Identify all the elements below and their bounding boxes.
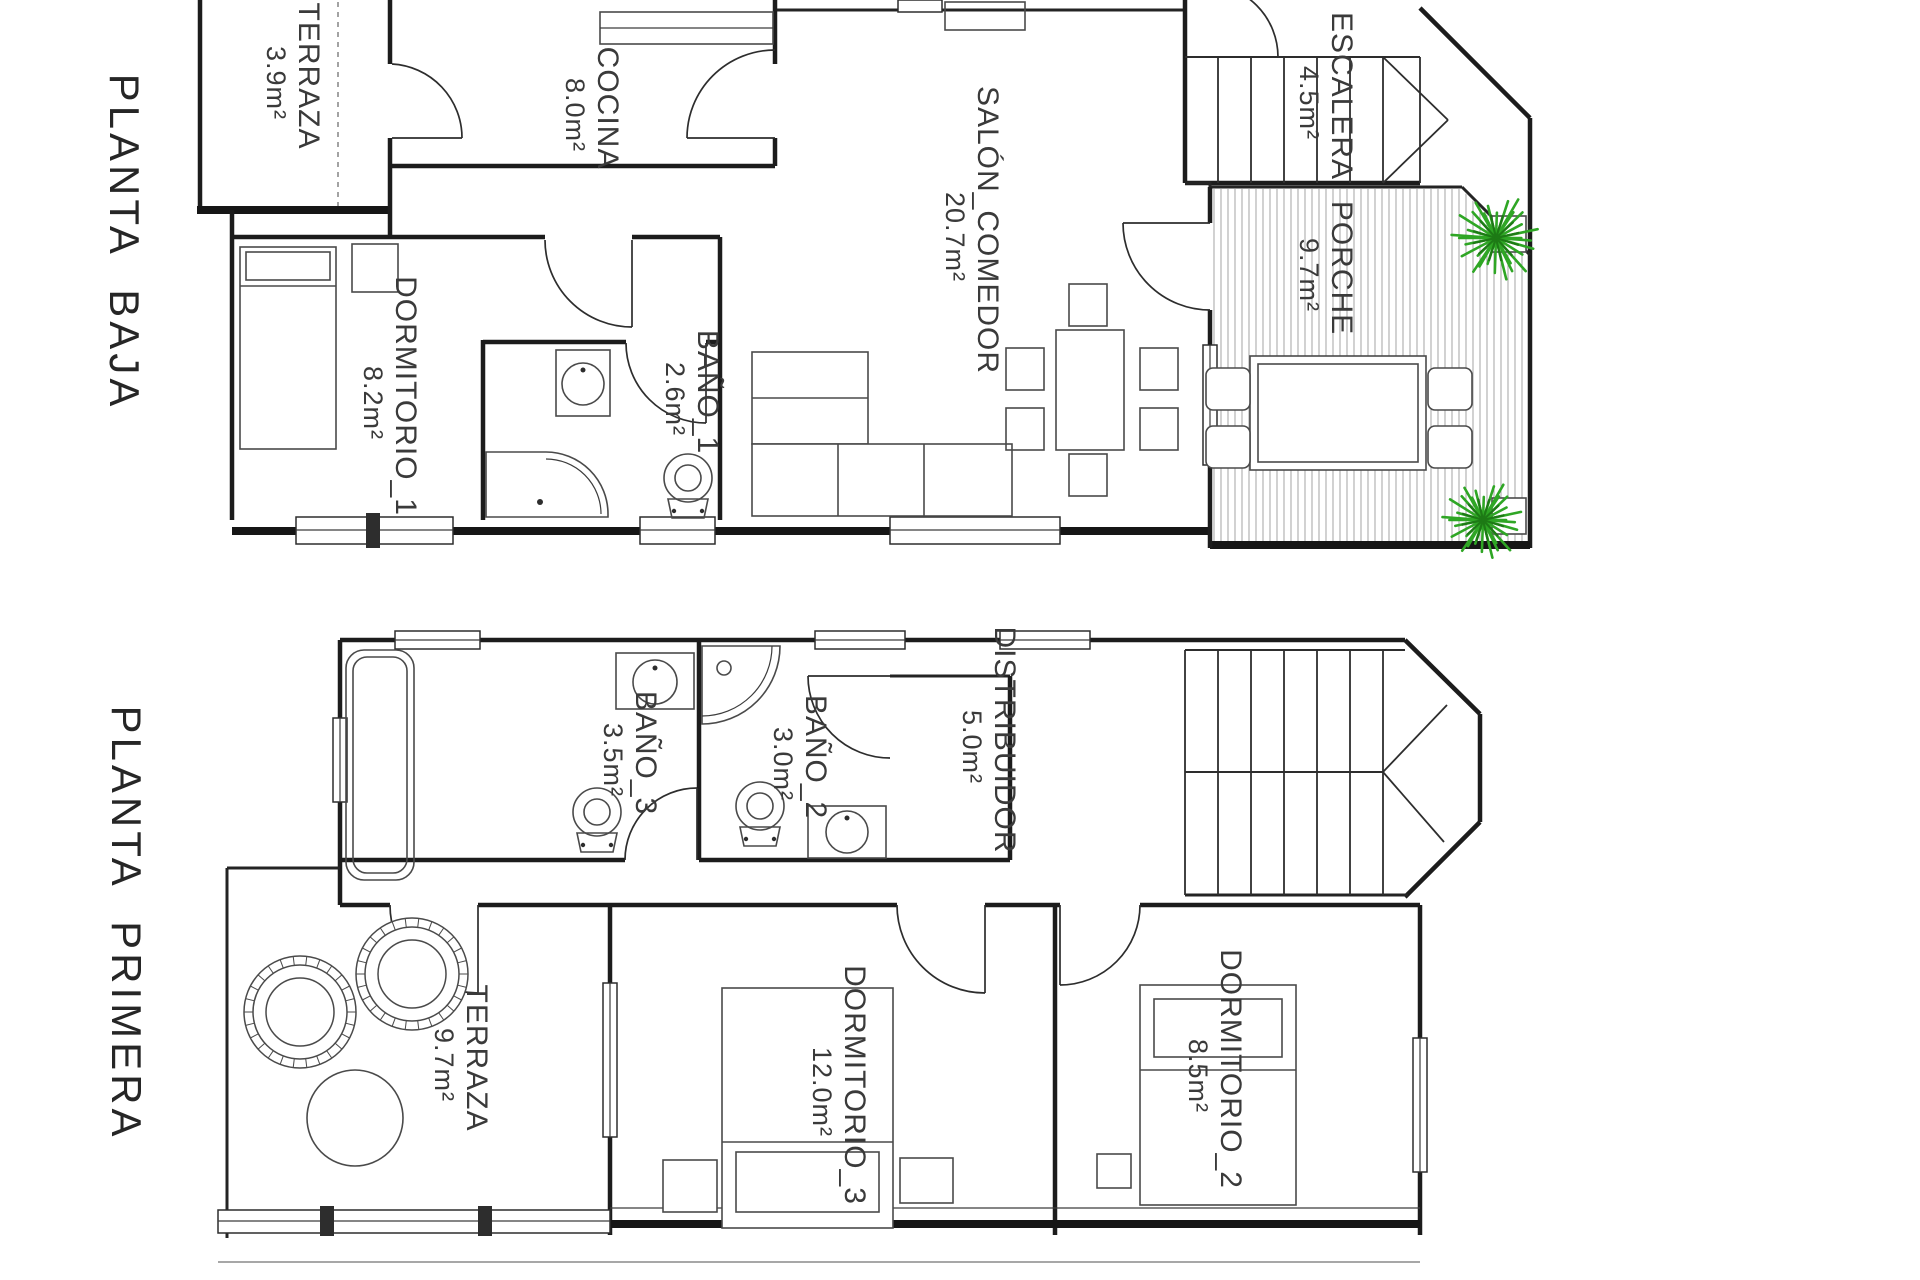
floorplan-page: TERRAZA 3.9m² COCINA 8.0m² SALÓN_COMEDOR… bbox=[0, 0, 1920, 1280]
svg-text:PLANTA BAJA: PLANTA BAJA bbox=[101, 74, 148, 411]
room-area: 9.7m² bbox=[1294, 238, 1324, 312]
room-area: 3.9m² bbox=[261, 46, 291, 120]
room-area: 9.7m² bbox=[429, 1028, 459, 1102]
room-area: 5.0m² bbox=[957, 710, 987, 784]
room-label-cocina: COCINA 8.0m² bbox=[560, 47, 624, 170]
sink-bano1 bbox=[556, 350, 610, 416]
porch-table bbox=[1250, 356, 1426, 470]
door-dormitorio2 bbox=[1060, 905, 1140, 985]
room-name: TERRAZA bbox=[292, 2, 325, 149]
shower-bano1 bbox=[486, 452, 608, 517]
kitchen-counter bbox=[600, 12, 773, 44]
bathtub bbox=[346, 650, 414, 880]
floor-title-planta-baja: PLANTA BAJA bbox=[101, 74, 148, 411]
ground-floor-plan: TERRAZA 3.9m² COCINA 8.0m² SALÓN_COMEDOR… bbox=[197, 0, 1538, 558]
room-name: DORMITORIO_1 bbox=[389, 276, 422, 516]
room-name: DORMITORIO_3 bbox=[838, 965, 871, 1205]
door-terraza-kitchen bbox=[392, 64, 462, 138]
room-label-salon-comedor: SALÓN_COMEDOR 20.7m² bbox=[940, 86, 1004, 374]
room-name: COCINA bbox=[591, 47, 624, 170]
wicker-chair bbox=[244, 956, 356, 1068]
corner-shower-bano2 bbox=[702, 646, 780, 724]
room-name: BAÑO_3 bbox=[629, 691, 663, 815]
wicker-chair bbox=[356, 918, 468, 1030]
room-name: DISTRIBUIDOR bbox=[988, 626, 1021, 853]
room-label-dormitorio1: DORMITORIO_1 8.2m² bbox=[358, 276, 422, 516]
bed-dormitorio1 bbox=[240, 247, 336, 449]
room-label-escalera: ESCALERA 4.5m² bbox=[1294, 12, 1358, 180]
first-floor-plan: BAÑO_3 3.5m² BAÑO_2 3.0m² DISTRIBUIDOR 5… bbox=[218, 626, 1480, 1262]
room-area: 8.2m² bbox=[358, 366, 388, 440]
room-area: 3.0m² bbox=[768, 727, 798, 801]
room-label-distribuidor: DISTRIBUIDOR 5.0m² bbox=[957, 626, 1021, 853]
toilet-bano3 bbox=[573, 788, 621, 852]
toilet-bano1 bbox=[664, 454, 712, 518]
room-label-bano3: BAÑO_3 3.5m² bbox=[598, 691, 663, 815]
room-name: ESCALERA bbox=[1325, 12, 1358, 180]
room-name: PORCHE bbox=[1325, 201, 1358, 335]
room-label-porche: PORCHE 9.7m² bbox=[1294, 201, 1358, 335]
door-entrance bbox=[1205, 0, 1278, 57]
room-area: 2.6m² bbox=[660, 362, 690, 436]
nightstand bbox=[1097, 1154, 1131, 1188]
nightstand bbox=[900, 1158, 953, 1203]
stairs-first-floor bbox=[1185, 650, 1447, 895]
door-kitchen-salon bbox=[687, 50, 775, 138]
side-table bbox=[945, 2, 1025, 30]
room-area: 20.7m² bbox=[940, 192, 970, 282]
svg-text:PLANTA PRIMERA: PLANTA PRIMERA bbox=[103, 706, 150, 1141]
room-name: SALÓN_COMEDOR bbox=[971, 86, 1004, 374]
room-name: BAÑO_1 bbox=[691, 330, 725, 454]
room-label-bano1: BAÑO_1 2.6m² bbox=[660, 330, 725, 454]
plant-icon bbox=[1452, 200, 1538, 280]
terrace-railing bbox=[218, 1206, 610, 1236]
room-label-bano2: BAÑO_2 3.0m² bbox=[768, 695, 833, 819]
room-name: TERRAZA bbox=[460, 984, 493, 1131]
room-label-terraza-gf: TERRAZA 3.9m² bbox=[261, 2, 325, 149]
door-dormitorio3 bbox=[897, 905, 985, 993]
dining-table bbox=[1056, 330, 1124, 450]
floor-title-planta-primera: PLANTA PRIMERA bbox=[103, 706, 150, 1141]
room-name: DORMITORIO_2 bbox=[1214, 949, 1247, 1189]
sofa bbox=[752, 352, 1012, 516]
door-salon-porche bbox=[1123, 223, 1210, 310]
room-area: 8.0m² bbox=[560, 78, 590, 152]
door-dormitorio1 bbox=[545, 240, 632, 327]
doors-first-floor bbox=[390, 676, 1140, 993]
nightstand bbox=[663, 1160, 717, 1212]
room-area: 4.5m² bbox=[1294, 66, 1324, 140]
floorplan-canvas: TERRAZA 3.9m² COCINA 8.0m² SALÓN_COMEDOR… bbox=[0, 0, 1920, 1280]
room-area: 8.5m² bbox=[1183, 1039, 1213, 1113]
round-table bbox=[307, 1070, 403, 1166]
room-area: 3.5m² bbox=[598, 723, 628, 797]
room-area: 12.0m² bbox=[807, 1047, 837, 1137]
room-name: BAÑO_2 bbox=[799, 695, 833, 819]
